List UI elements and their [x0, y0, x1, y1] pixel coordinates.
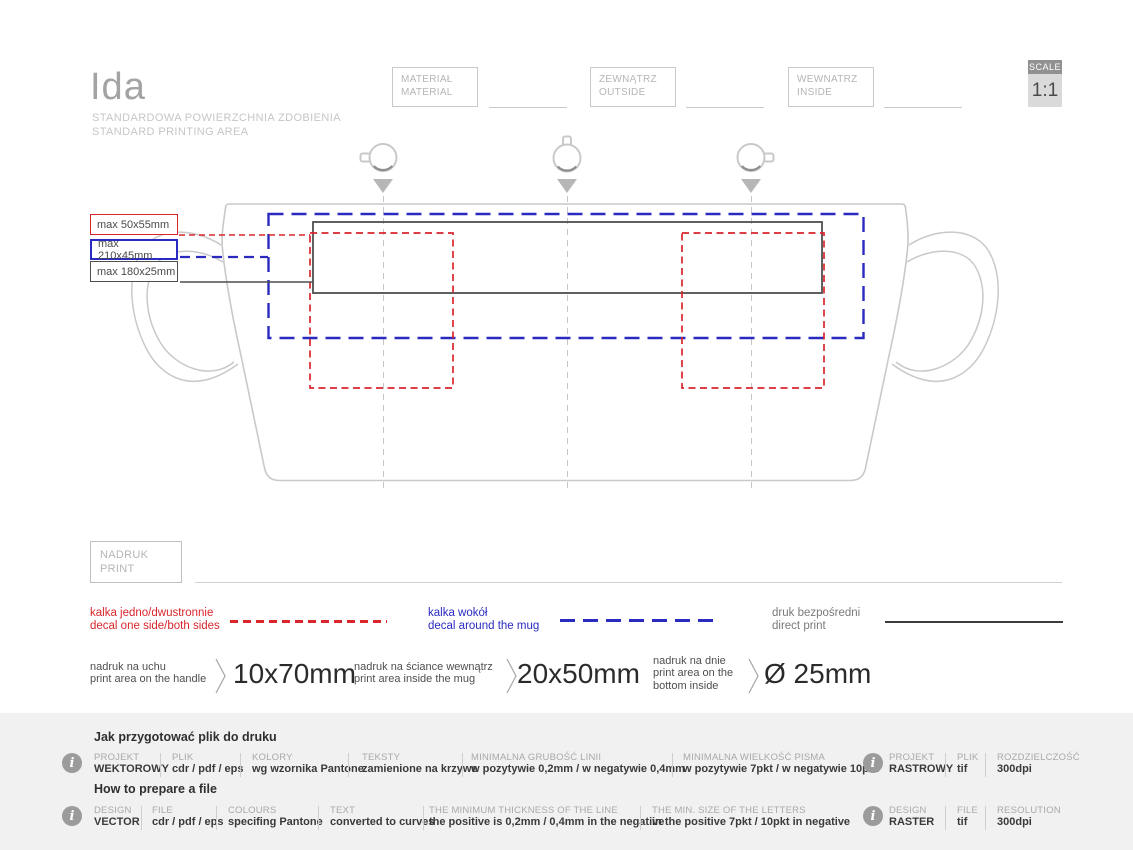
divider: [240, 753, 241, 777]
col-label: TEXT: [330, 805, 435, 816]
col-label: PLIK: [957, 752, 978, 763]
col-label: DESIGN: [889, 805, 934, 816]
print-fill-line: [195, 582, 1062, 583]
info-icon: i: [863, 753, 883, 773]
divider: [216, 806, 217, 830]
divider: [945, 806, 946, 830]
divider: [160, 753, 161, 777]
col-label: RESOLUTION: [997, 805, 1061, 816]
divider: [462, 753, 463, 777]
footer-col-projekt: PROJEKT WEKTOROWY: [94, 752, 169, 776]
legend-decal-around-pl: kalka wokół: [428, 607, 539, 620]
footer-col-raster-design: DESIGN RASTER: [889, 805, 934, 829]
top-view-handle-back: [554, 137, 581, 172]
col-value: zamienione na krzywe: [362, 763, 478, 776]
footer-col-min-grubosc: MINIMALNA GRUBOŚĆ LINII w pozytywie 0,2m…: [471, 752, 685, 776]
divider: [672, 753, 673, 777]
position-arrow-left: [373, 179, 393, 193]
col-value: w pozytywie 0,2mm / w negatywie 0,4mm: [471, 763, 685, 776]
measure-bottom-pl: nadruk na dnie: [653, 655, 733, 667]
col-value: w pozytywie 7pkt / w negatywie 10pkt: [683, 763, 879, 776]
measure-inside-pl: nadruk na ściance wewnątrz: [354, 661, 493, 673]
col-value: converted to curves: [330, 816, 435, 829]
divider: [945, 753, 946, 777]
info-icon: i: [62, 806, 82, 826]
col-label: PLIK: [172, 752, 244, 763]
position-arrow-center: [557, 179, 577, 193]
col-label: MINIMALNA WIELKOŚĆ PISMA: [683, 752, 879, 763]
col-value: WEKTOROWY: [94, 763, 169, 776]
footer-col-min-thickness: THE MINIMUM THICKNESS OF THE LINE the po…: [429, 805, 664, 829]
max-label-decal-side-text: max 50x55mm: [97, 219, 169, 231]
col-value: tif: [957, 763, 978, 776]
print-field-en: PRINT: [100, 563, 181, 577]
max-label-decal-side: max 50x55mm: [90, 214, 178, 235]
measure-handle-label: nadruk na uchu print area on the handle: [90, 661, 206, 686]
col-value: 300dpi: [997, 816, 1061, 829]
footer-col-raster-file: FILE tif: [957, 805, 978, 829]
col-value: 300dpi: [997, 763, 1080, 776]
measure-inside-label: nadruk na ściance wewnątrz print area in…: [354, 661, 493, 686]
footer-col-min-letters: THE MIN. SIZE OF THE LETTERS in the posi…: [652, 805, 850, 829]
print-field-pl: NADRUK: [100, 549, 181, 563]
measure-bottom-en2: bottom inside: [653, 680, 733, 692]
footer-heading-en: How to prepare a file: [94, 782, 217, 796]
legend-blue-dash-sample: [560, 619, 721, 622]
max-label-decal-around: max 210x45mm: [90, 239, 178, 260]
info-icon: i: [62, 753, 82, 773]
footer-heading-pl: Jak przygotować plik do druku: [94, 730, 277, 744]
legend-direct-print: druk bezpośredni direct print: [772, 607, 860, 632]
footer-col-raster-plik: PLIK tif: [957, 752, 978, 776]
max-label-direct-print: max 180x25mm: [90, 261, 178, 282]
divider: [985, 806, 986, 830]
measure-bottom-value: Ø 25mm: [764, 658, 871, 690]
divider: [141, 806, 142, 830]
col-label: FILE: [957, 805, 978, 816]
legend-decal-around-en: decal around the mug: [428, 620, 539, 633]
col-label: COLOURS: [228, 805, 323, 816]
print-field-box: NADRUK PRINT: [90, 541, 182, 583]
legend-decal-around: kalka wokół decal around the mug: [428, 607, 539, 632]
col-value: cdr / pdf / eps: [152, 816, 224, 829]
footer-col-text: TEXT converted to curves: [330, 805, 435, 829]
footer-col-raster-projekt: PROJEKT RASTROWY: [889, 752, 953, 776]
mug-right-handle-inner: [896, 251, 983, 371]
measure-inside-value: 20x50mm: [517, 658, 640, 690]
col-value: cdr / pdf / eps: [172, 763, 244, 776]
footer-col-design: DESIGN VECTOR: [94, 805, 140, 829]
info-glyph: i: [70, 809, 75, 824]
legend-decal-side-pl: kalka jedno/dwustronnie: [90, 607, 220, 620]
col-label: THE MIN. SIZE OF THE LETTERS: [652, 805, 850, 816]
info-glyph: i: [871, 756, 876, 771]
col-label: TEKSTY: [362, 752, 478, 763]
chevron-icon: [747, 657, 761, 695]
legend-decal-side: kalka jedno/dwustronnie decal one side/b…: [90, 607, 220, 632]
divider: [318, 806, 319, 830]
divider: [640, 806, 641, 830]
info-glyph: i: [871, 809, 876, 824]
measure-handle-en: print area on the handle: [90, 673, 206, 685]
decal-side-area-right: [682, 233, 824, 388]
measure-inside-en: print area inside the mug: [354, 673, 493, 685]
col-value: in the positive 7pkt / 10pkt in negative: [652, 816, 850, 829]
info-icon: i: [863, 806, 883, 826]
position-arrow-right: [741, 179, 761, 193]
col-label: THE MINIMUM THICKNESS OF THE LINE: [429, 805, 664, 816]
footer-col-teksty: TEKSTY zamienione na krzywe: [362, 752, 478, 776]
col-value: RASTROWY: [889, 763, 953, 776]
col-value: specifing Pantone: [228, 816, 323, 829]
col-label: DESIGN: [94, 805, 140, 816]
footer-col-file: FILE cdr / pdf / eps: [152, 805, 224, 829]
measure-bottom-label: nadruk na dnie print area on the bottom …: [653, 655, 733, 692]
legend-direct-print-en: direct print: [772, 620, 860, 633]
col-value: the positive is 0,2mm / 0,4mm in the neg…: [429, 816, 664, 829]
divider: [423, 806, 424, 830]
footer-col-rozdzielczosc: ROZDZIELCZOŚĆ 300dpi: [997, 752, 1080, 776]
legend-direct-print-pl: druk bezpośredni: [772, 607, 860, 620]
top-view-handle-right: [738, 144, 774, 171]
mug-body-outline: [222, 204, 908, 481]
footer-col-plik: PLIK cdr / pdf / eps: [172, 752, 244, 776]
legend-red-dash-sample: [230, 620, 387, 623]
col-value: RASTER: [889, 816, 934, 829]
info-glyph: i: [70, 756, 75, 771]
col-value: tif: [957, 816, 978, 829]
max-label-direct-print-text: max 180x25mm: [97, 266, 175, 278]
footer-col-resolution: RESOLUTION 300dpi: [997, 805, 1061, 829]
spec-sheet: Ida STANDARDOWA POWIERZCHNIA ZDOBIENIA S…: [0, 0, 1133, 850]
measure-handle-value: 10x70mm: [233, 658, 356, 690]
divider: [348, 753, 349, 777]
col-label: FILE: [152, 805, 224, 816]
measure-handle-pl: nadruk na uchu: [90, 661, 206, 673]
max-label-decal-around-text: max 210x45mm: [98, 238, 176, 262]
decal-side-area-left: [310, 233, 453, 388]
top-view-handle-left: [361, 144, 397, 171]
legend-solid-line-sample: [885, 621, 1063, 623]
divider: [985, 753, 986, 777]
measure-bottom-en1: print area on the: [653, 667, 733, 679]
footer-col-min-wielkosc: MINIMALNA WIELKOŚĆ PISMA w pozytywie 7pk…: [683, 752, 879, 776]
col-value: VECTOR: [94, 816, 140, 829]
legend-decal-side-en: decal one side/both sides: [90, 620, 220, 633]
col-label: PROJEKT: [889, 752, 953, 763]
col-label: ROZDZIELCZOŚĆ: [997, 752, 1080, 763]
col-label: MINIMALNA GRUBOŚĆ LINII: [471, 752, 685, 763]
col-label: PROJEKT: [94, 752, 169, 763]
footer-col-colours: COLOURS specifing Pantone: [228, 805, 323, 829]
chevron-icon: [214, 657, 228, 695]
